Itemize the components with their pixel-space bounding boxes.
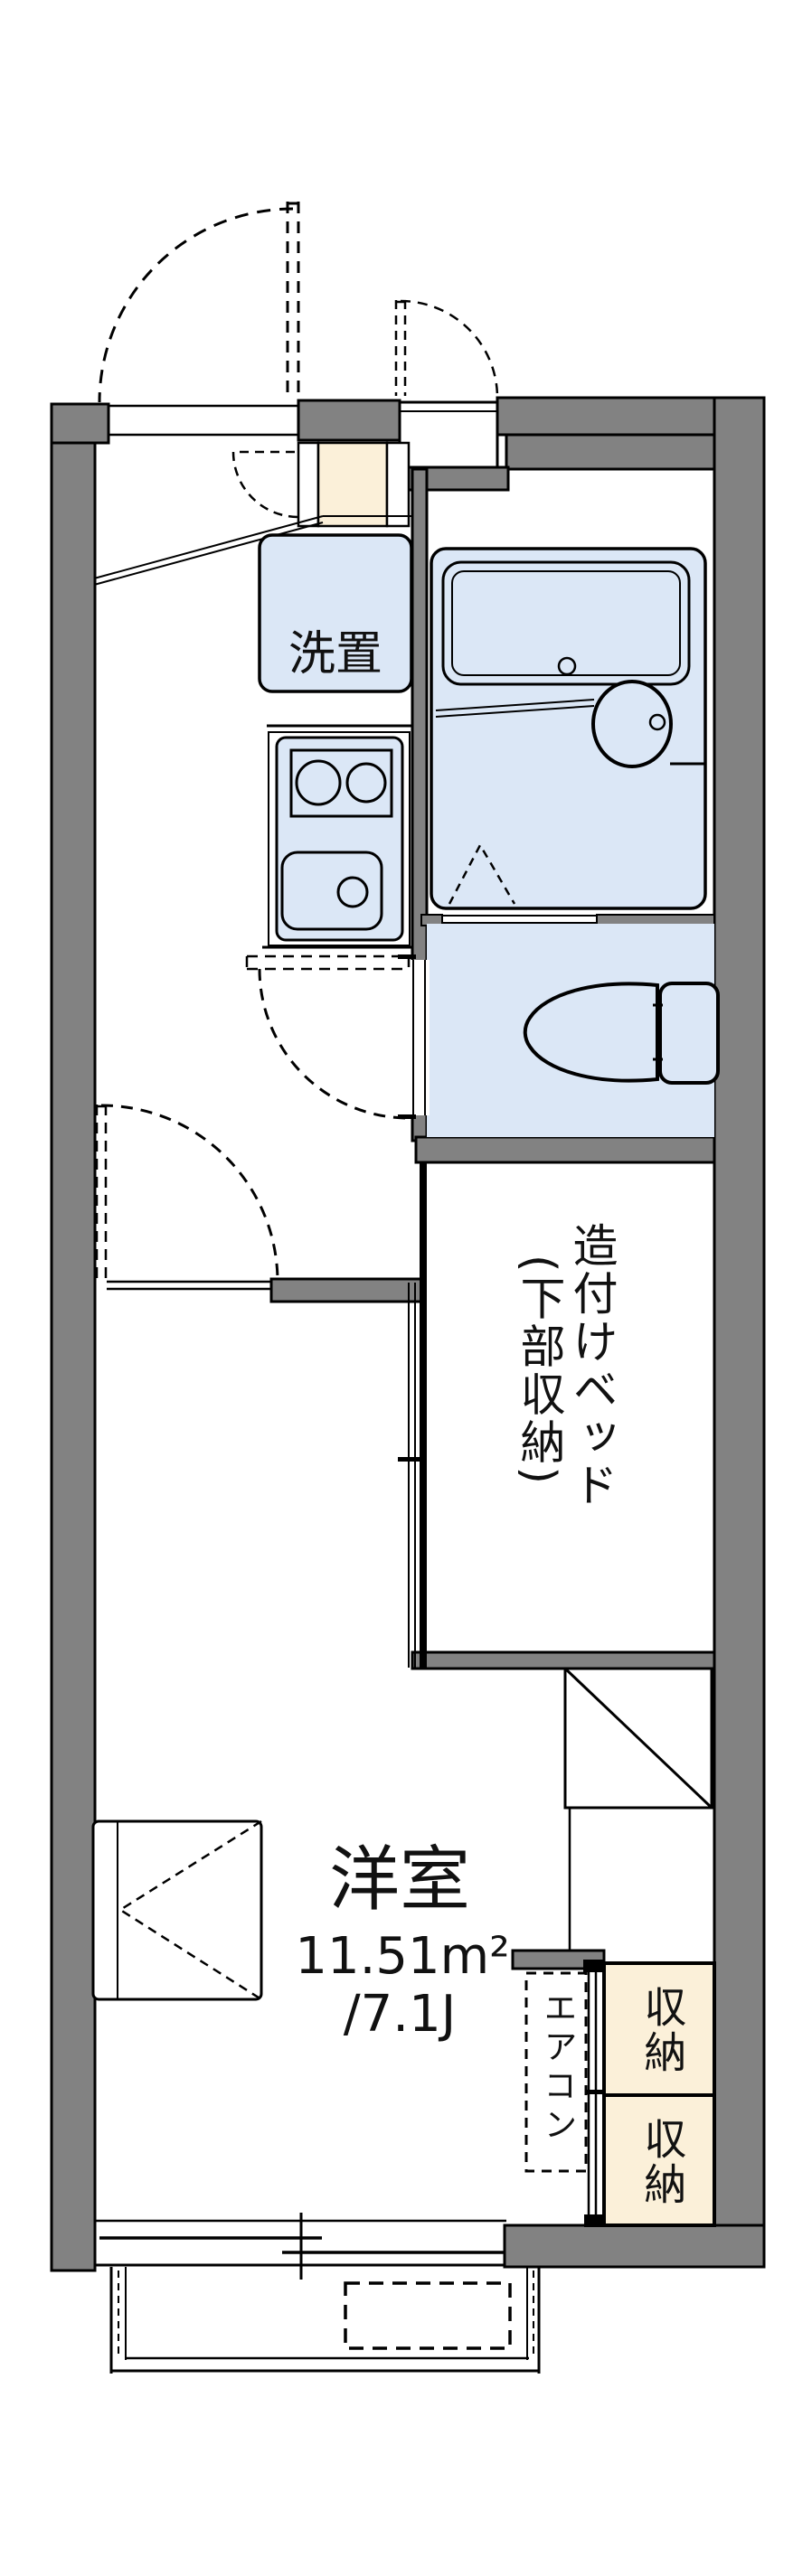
kitchen-sink	[282, 852, 382, 929]
meter-box	[400, 402, 497, 467]
room-area-sqm: 11.51m²	[222, 1931, 583, 1984]
outdoor-storage-door	[396, 300, 497, 398]
bed-sliding-door	[398, 1283, 420, 1668]
toilet	[525, 983, 718, 1083]
toilet-door	[398, 954, 430, 1119]
balcony-hatch	[345, 2283, 510, 2348]
hall-living-threshold	[107, 1282, 271, 1289]
bath-door-threshold	[442, 916, 597, 923]
shoe-cabinet	[298, 443, 409, 526]
floor-plan: 洗置 造付けベッド (下部収納) 洋室 11.51m² /7.1J エアコン 収…	[0, 0, 812, 2576]
storage-lower-label: 収納	[638, 2117, 683, 2207]
toilet-tank	[660, 983, 718, 1083]
gas-stove	[291, 750, 392, 816]
bed-step-box	[565, 1669, 712, 1951]
sliding-window	[95, 2213, 506, 2280]
basin-faucet	[650, 715, 665, 729]
bed-room-left-wall	[420, 1162, 427, 1669]
under-bed-storage-label: (下部収納)	[515, 1255, 563, 1487]
built-in-bed-label: 造付けベッド	[568, 1222, 616, 1509]
room-area-jo: /7.1J	[219, 1988, 581, 2042]
washer-label: 洗置	[260, 630, 411, 680]
aircon-label: エアコン	[539, 1990, 574, 2146]
floor-plan-drawing	[0, 0, 812, 2576]
hall-door	[97, 1105, 278, 1282]
storage-upper-label: 収納	[638, 1985, 683, 2075]
room-name: 洋室	[219, 1844, 581, 1918]
unit-bath	[431, 549, 705, 908]
entrance-door	[99, 202, 298, 402]
shoe-cabinet-door-swing	[233, 452, 298, 517]
refrigerator-space	[247, 956, 409, 1118]
balcony	[111, 2267, 540, 2374]
entrance-threshold	[109, 406, 298, 435]
